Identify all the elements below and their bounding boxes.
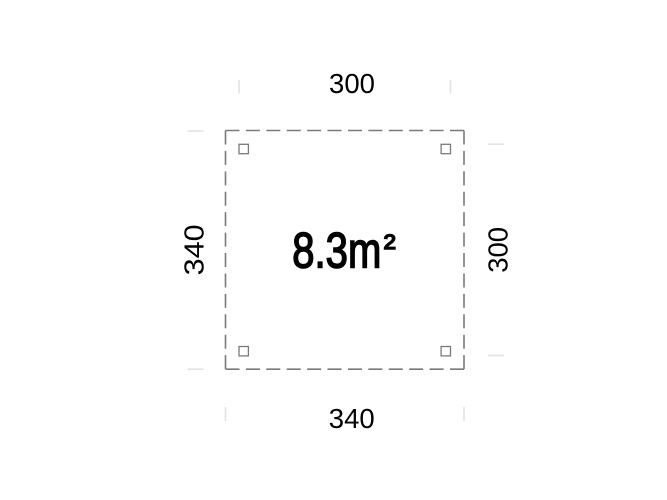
- svg-text:340: 340: [179, 224, 210, 275]
- svg-text:8.3m: 8.3m: [292, 222, 381, 279]
- svg-text:340: 340: [329, 403, 375, 434]
- svg-text:300: 300: [329, 68, 375, 99]
- svg-text:2: 2: [384, 231, 397, 254]
- svg-text:300: 300: [483, 227, 514, 273]
